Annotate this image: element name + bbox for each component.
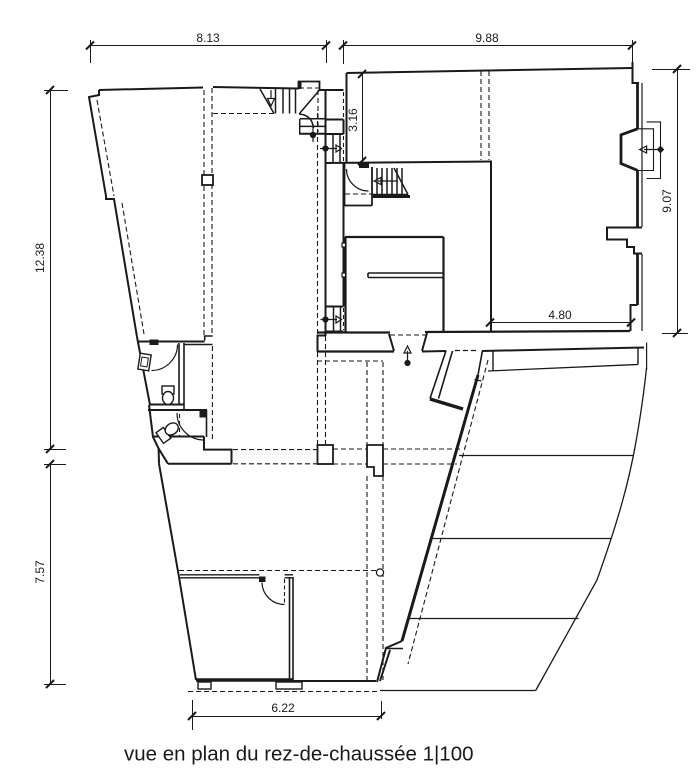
svg-text:vue en plan du rez-de-chaussée: vue en plan du rez-de-chaussée 1|100 (124, 743, 474, 766)
svg-text:4.80: 4.80 (548, 308, 572, 322)
svg-text:9.88: 9.88 (475, 31, 499, 45)
svg-text:7.57: 7.57 (33, 560, 47, 584)
svg-text:8.13: 8.13 (196, 31, 220, 45)
svg-text:9.07: 9.07 (660, 189, 674, 213)
svg-text:6.22: 6.22 (271, 701, 295, 715)
svg-text:3.16: 3.16 (346, 108, 360, 132)
svg-text:12.38: 12.38 (33, 243, 47, 273)
